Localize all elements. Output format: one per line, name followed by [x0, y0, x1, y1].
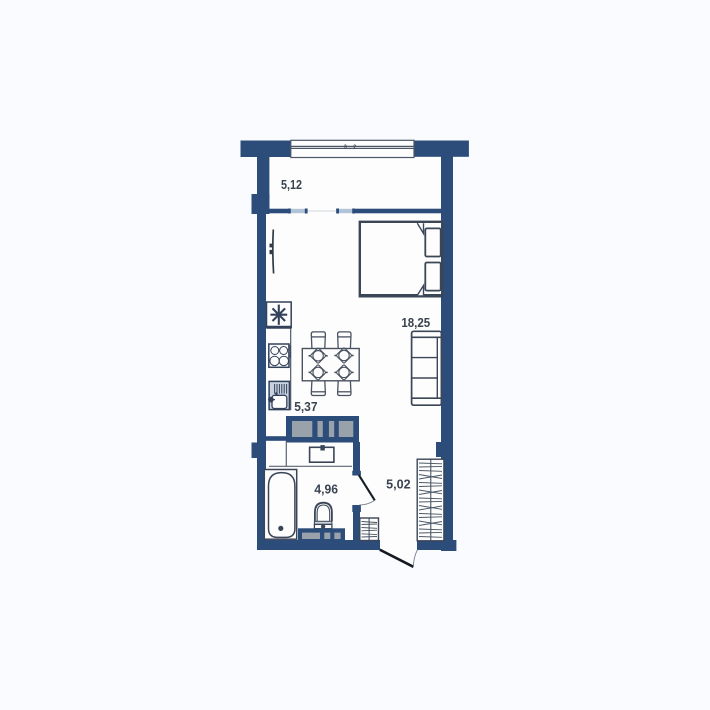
svg-text:4,96: 4,96 — [314, 482, 338, 497]
svg-text:5,12: 5,12 — [281, 177, 302, 192]
svg-text:3,2: 3,2 — [344, 145, 356, 151]
svg-text:18,25: 18,25 — [401, 315, 430, 330]
svg-text:5,02: 5,02 — [386, 476, 411, 491]
svg-text:5,37: 5,37 — [294, 399, 317, 414]
